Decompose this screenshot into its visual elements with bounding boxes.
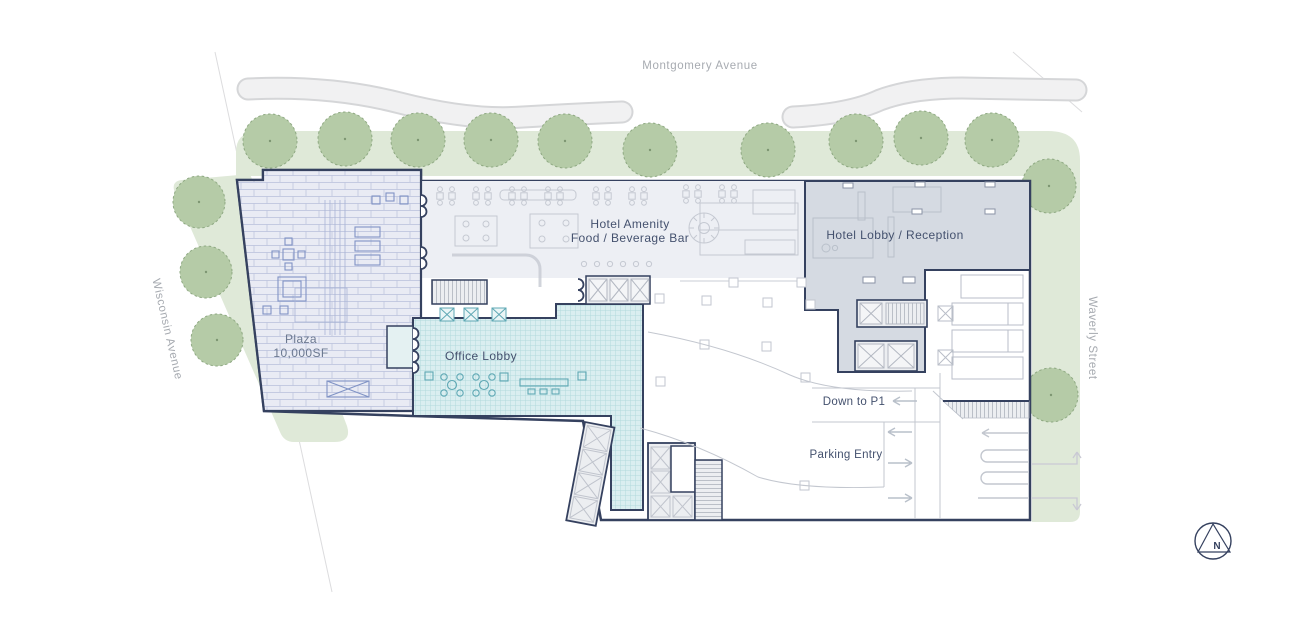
core-hotel-elevators-2 — [855, 341, 917, 371]
north-arrow-icon: N — [1195, 523, 1231, 559]
hotel-amenity-label-line2: Food / Beverage Bar — [571, 231, 689, 245]
office-lobby-side-vestibule — [387, 326, 413, 368]
tree-icon — [1024, 368, 1078, 422]
parking-entry-label: Parking Entry — [810, 449, 883, 461]
hotel-lobby-label: Hotel Lobby / Reception — [826, 228, 963, 242]
street-label-waverly: Waverly Street — [1086, 296, 1098, 380]
tree-icon — [965, 113, 1019, 167]
tree-icon — [464, 113, 518, 167]
street-label-montgomery: Montgomery Avenue — [642, 60, 757, 72]
site-plan-page: Montgomery Avenue Wisconsin Avenue Waver… — [0, 0, 1290, 620]
tree-icon — [538, 114, 592, 168]
site-plan-drawing: Montgomery Avenue Wisconsin Avenue Waver… — [0, 0, 1290, 620]
plaza-area-label: 10,000SF — [273, 346, 328, 360]
office-lobby-label: Office Lobby — [445, 349, 517, 363]
down-to-p1-label: Down to P1 — [823, 396, 885, 408]
tree-icon — [318, 112, 372, 166]
tree-icon — [391, 113, 445, 167]
north-label: N — [1213, 541, 1220, 552]
tree-icon — [829, 114, 883, 168]
tree-icon — [191, 314, 243, 366]
lower-core-room — [671, 446, 695, 492]
tree-icon — [180, 246, 232, 298]
core-stair-lower — [695, 460, 722, 520]
plaza-name-label: Plaza — [285, 332, 317, 346]
core-stair-amenity — [432, 280, 487, 304]
core-hotel-stair-elevator — [857, 300, 927, 327]
tree-icon — [623, 123, 677, 177]
road-montgomery-lanes — [248, 88, 1076, 118]
tree-icon — [894, 111, 948, 165]
hotel-amenity-label-line1: Hotel Amenity — [590, 217, 669, 231]
tree-icon — [173, 176, 225, 228]
plaza-area — [237, 170, 421, 411]
core-elevator-bank — [586, 276, 650, 304]
vestibule-doors — [440, 308, 506, 321]
street-label-wisconsin: Wisconsin Avenue — [149, 278, 184, 381]
tree-icon — [243, 114, 297, 168]
tree-icon — [741, 123, 795, 177]
